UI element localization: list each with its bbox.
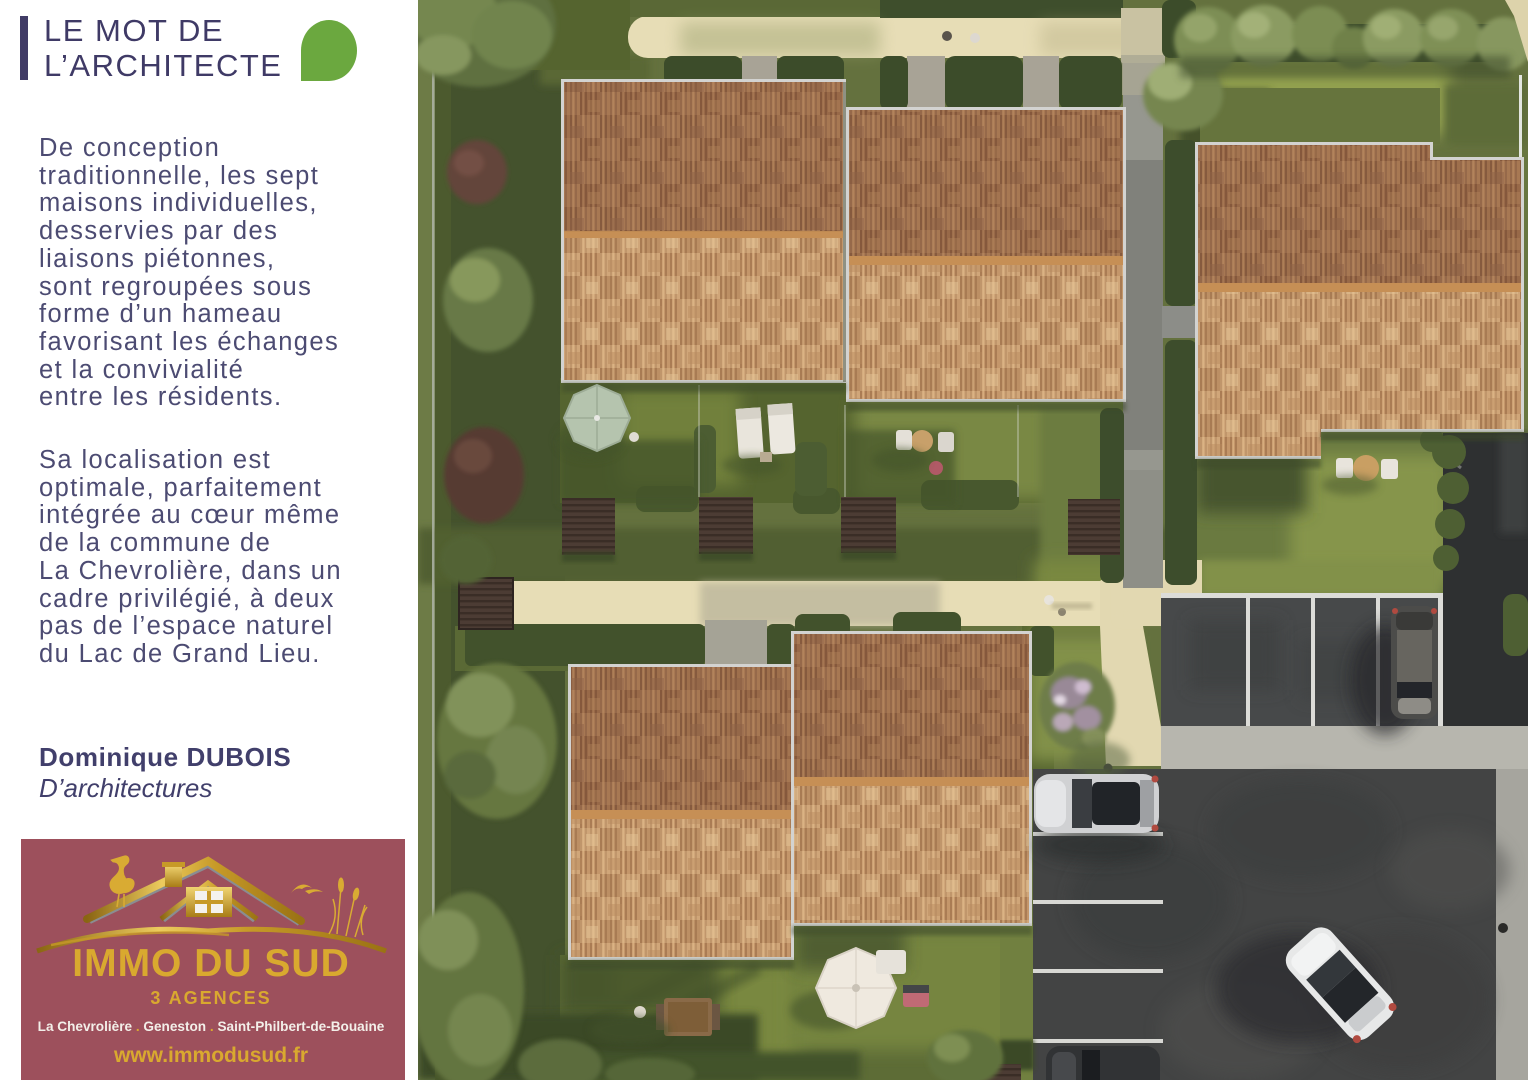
svg-text:www.immodusud.fr: www.immodusud.fr xyxy=(113,1044,308,1067)
svg-text:La Chevrolière . Geneston . Sa: La Chevrolière . Geneston . Saint-Philbe… xyxy=(38,1019,385,1034)
svg-text:IMMO DU SUD: IMMO DU SUD xyxy=(72,942,350,985)
svg-text:3 AGENCES: 3 AGENCES xyxy=(150,988,271,1008)
